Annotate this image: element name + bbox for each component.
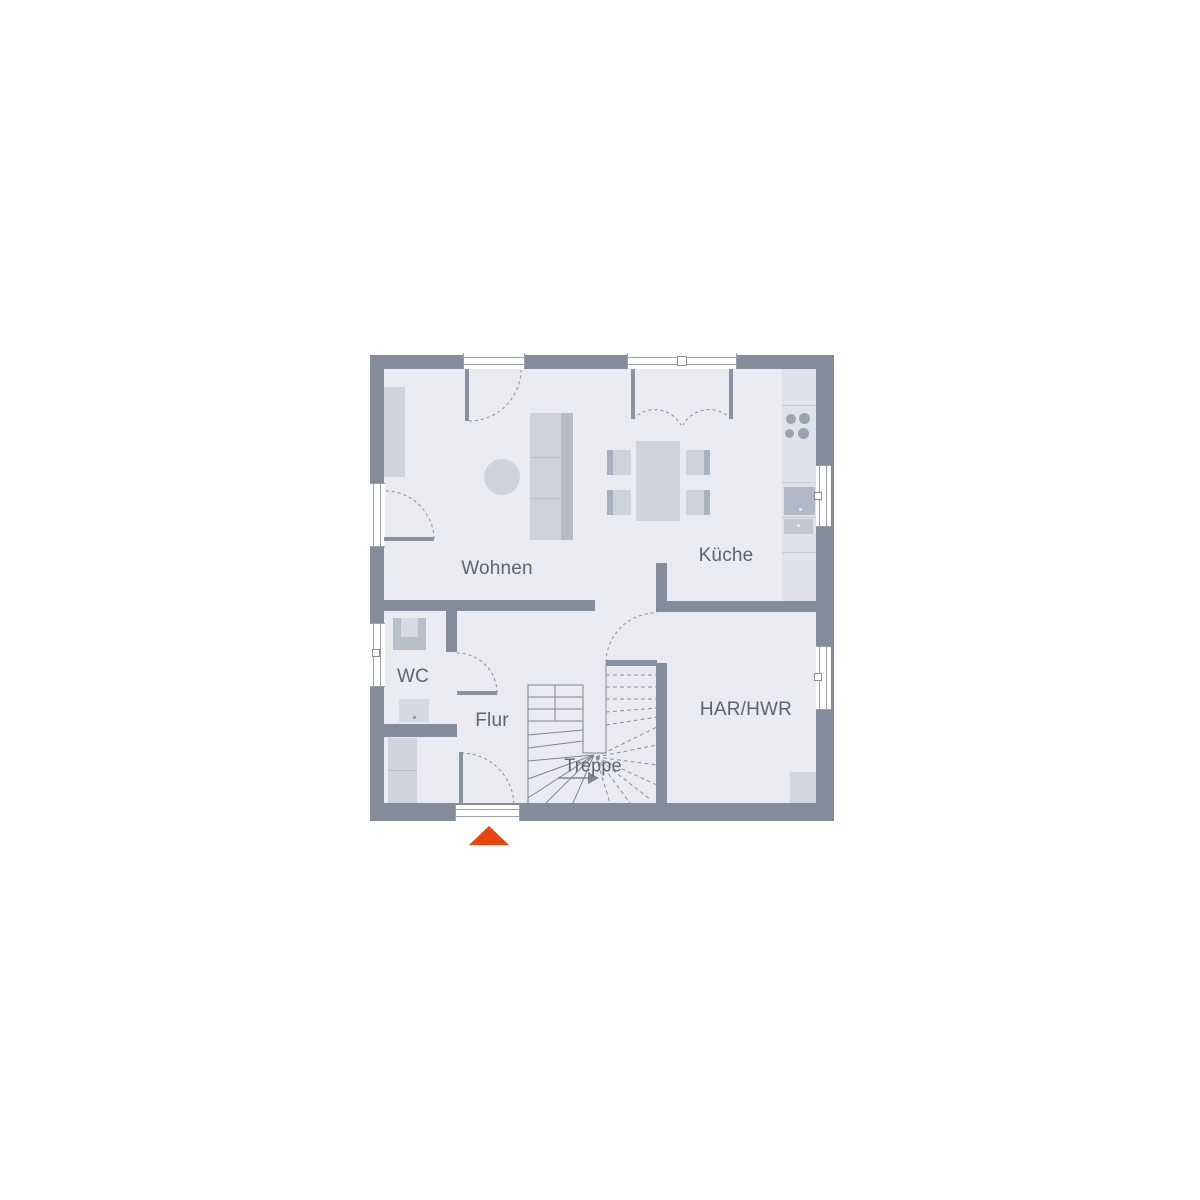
entrance-door-swing	[461, 753, 514, 805]
terrace-door-north-swing	[469, 370, 521, 421]
room-label-flur: Flur	[475, 710, 509, 732]
room-label-kueche: Küche	[699, 545, 754, 567]
french-door-left-swing	[633, 410, 681, 425]
room-label-treppe: Treppe	[564, 756, 622, 777]
room-label-wohnen: Wohnen	[461, 558, 533, 580]
ground-floor-plan: Wohnen Küche WC Flur Treppe HAR/HWR	[370, 355, 834, 821]
utility-door-leaf	[606, 660, 657, 666]
entrance-door-leaf	[459, 752, 463, 805]
terrace-door-west-swing	[385, 491, 434, 539]
stairs-upper-flight-dashed	[596, 675, 657, 803]
wc-door-swing	[457, 653, 497, 693]
french-door-left-leaf	[631, 369, 635, 419]
entrance-arrow-icon	[469, 826, 509, 845]
french-door-right-swing	[683, 410, 731, 425]
terrace-door-north-leaf	[465, 369, 469, 421]
floor-plan-canvas: Wohnen Küche WC Flur Treppe HAR/HWR	[0, 0, 1200, 1200]
stairs-lower-flight	[528, 663, 606, 803]
door-swing-arcs	[385, 370, 731, 805]
wc-door-leaf	[457, 691, 497, 695]
room-label-har-hwr: HAR/HWR	[700, 699, 792, 721]
doors-and-stairs-layer	[370, 355, 834, 821]
french-door-right-leaf	[729, 369, 733, 419]
terrace-door-west-leaf	[384, 537, 434, 541]
room-label-wc: WC	[397, 666, 429, 688]
utility-door-swing	[606, 613, 657, 662]
door-leaves	[384, 369, 733, 805]
